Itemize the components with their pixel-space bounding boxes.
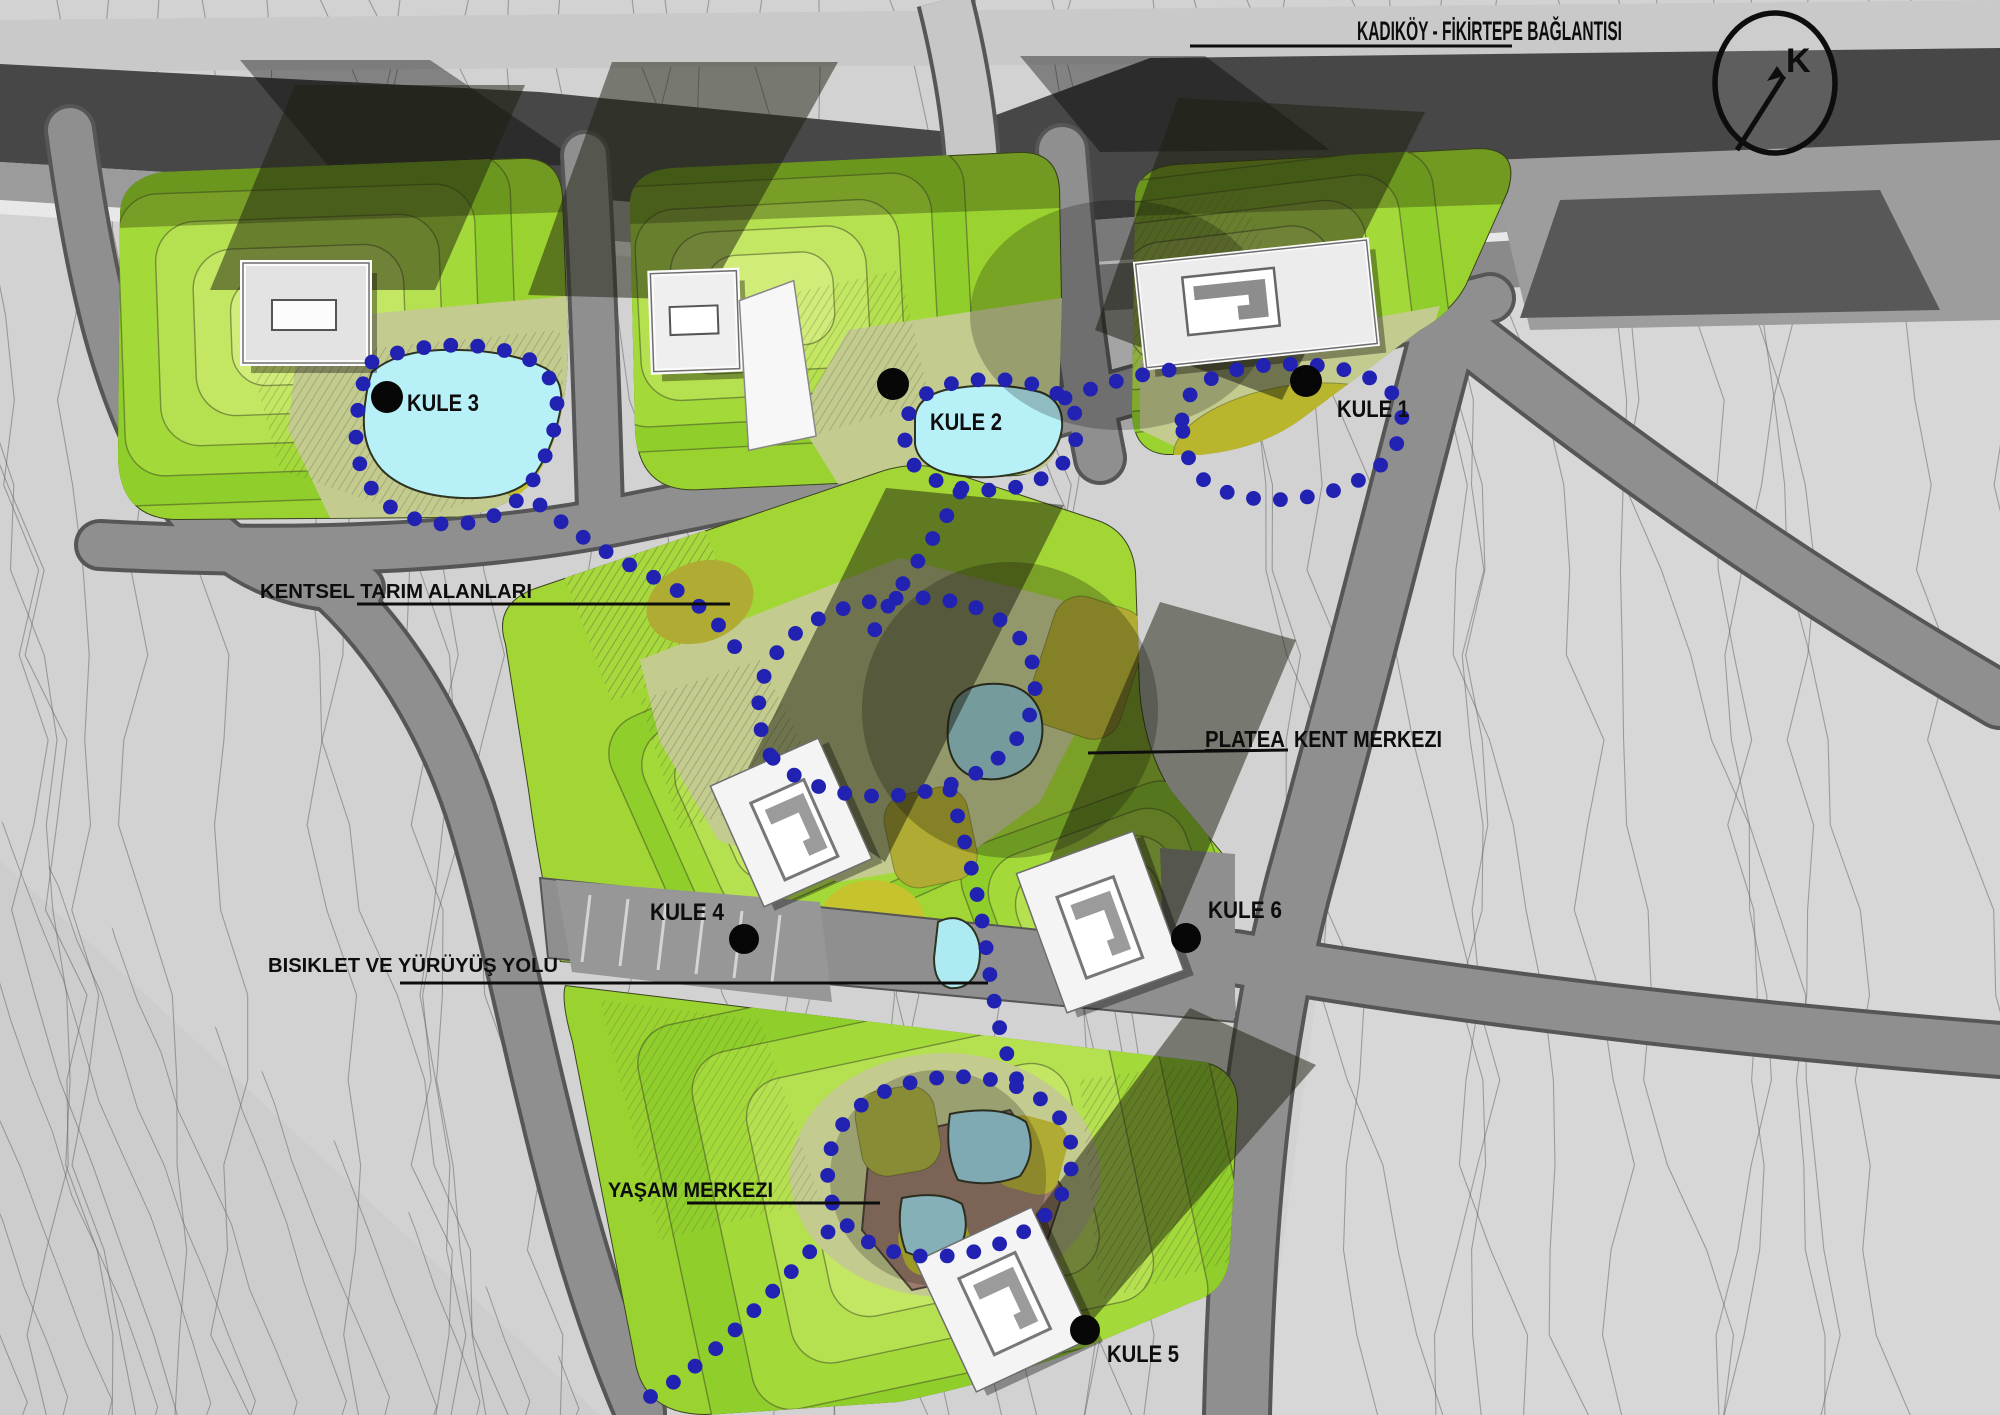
compass-north-letter: K	[1786, 42, 1811, 80]
label-platea: PLATEA	[1205, 726, 1285, 752]
dot-kule6	[1171, 923, 1201, 953]
site-plan-svg: KADIKÖY - FİKİRTEPE BAĞLANTISI KULE 3 KU…	[0, 0, 2000, 1415]
label-kule2: KULE 2	[930, 409, 1002, 436]
dot-kule2	[877, 368, 909, 400]
label-farming: KENTSEL TARIM ALANLARI	[260, 581, 532, 603]
label-kule3: KULE 3	[407, 390, 479, 417]
dot-kule1	[1290, 365, 1322, 397]
pond-kule6-path	[934, 918, 980, 988]
label-kule4: KULE 4	[650, 899, 725, 926]
dot-kule3	[371, 381, 403, 413]
label-kule5: KULE 5	[1107, 1341, 1179, 1368]
compass-icon: K	[1715, 13, 1835, 153]
building-kule3	[243, 263, 377, 373]
label-connection: KADIKÖY - FİKİRTEPE BAĞLANTISI	[1357, 15, 1622, 46]
dot-kule4	[729, 924, 759, 954]
label-kule6: KULE 6	[1208, 897, 1282, 924]
label-bike: BISIKLET VE YÜRÜYÜŞ YOLU	[268, 954, 558, 977]
label-life-center: YAŞAM MERKEZI	[608, 1179, 773, 1202]
dot-kule5	[1070, 1315, 1100, 1345]
label-kent-merkezi: KENT MERKEZI	[1294, 726, 1442, 752]
label-kule1: KULE 1	[1337, 396, 1409, 423]
site-plan: KADIKÖY - FİKİRTEPE BAĞLANTISI KULE 3 KU…	[0, 0, 2000, 1415]
